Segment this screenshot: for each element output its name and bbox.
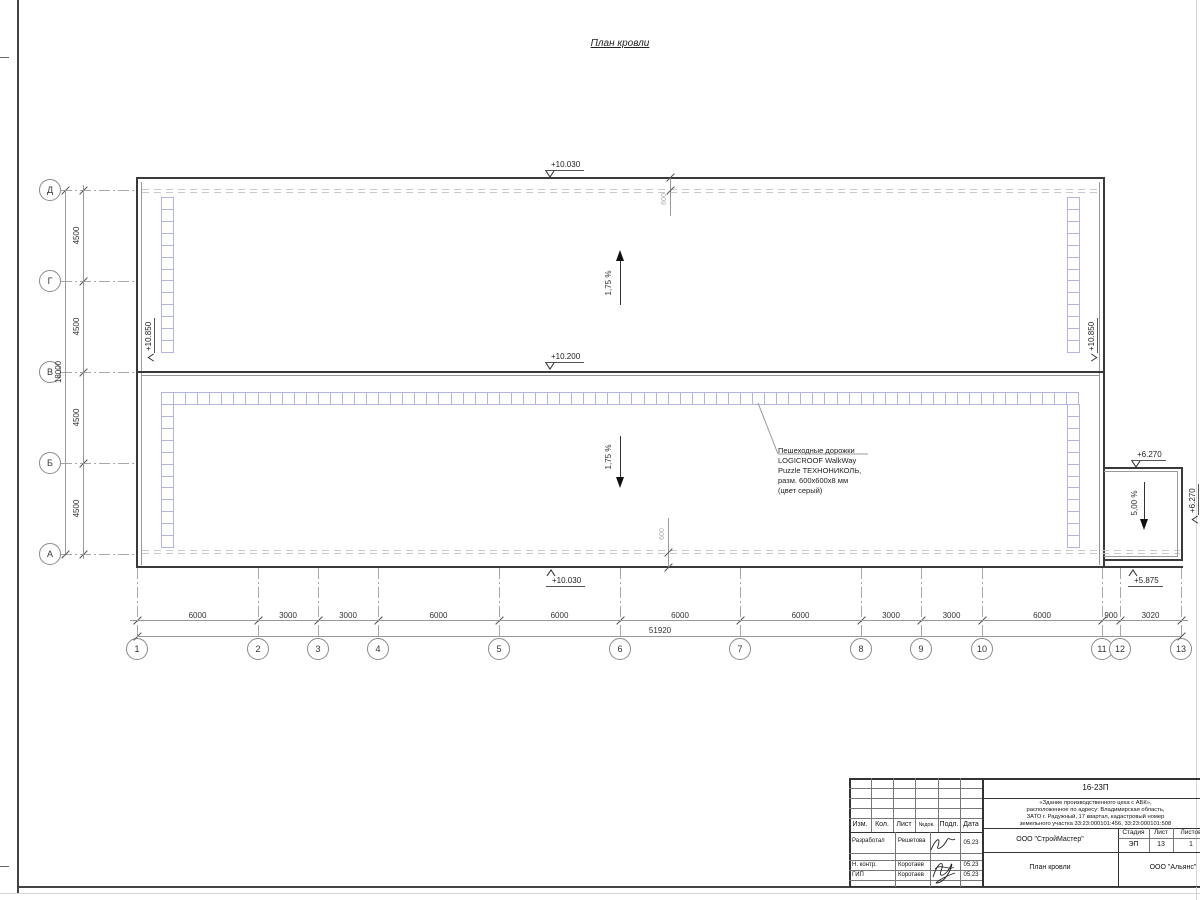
elevation-arrow-down-icon bbox=[545, 170, 555, 178]
walkway-tile bbox=[402, 393, 414, 404]
col-axis-bubble: 8 bbox=[850, 638, 872, 660]
dim-row-segment-text: 4500 bbox=[72, 372, 83, 463]
slope-arrow-canopy-head bbox=[1140, 519, 1148, 530]
canopy-right-edge bbox=[1181, 467, 1183, 561]
walkway-tile bbox=[1017, 393, 1029, 404]
dim-row-segment-text: 4500 bbox=[72, 281, 83, 372]
walkway-tile bbox=[1068, 292, 1079, 304]
walkway-tile bbox=[209, 393, 221, 404]
walkway-tile bbox=[1068, 221, 1079, 233]
wall-left-inner bbox=[141, 182, 142, 565]
walkway-note-line: Пешеходные дорожки bbox=[778, 446, 861, 456]
walkway-tile bbox=[162, 487, 173, 499]
tb-header-podl: Подл. bbox=[938, 821, 960, 828]
walkway-tile bbox=[162, 233, 173, 245]
walkway-tile bbox=[1068, 316, 1079, 328]
dim-col-segment-text: 3000 bbox=[323, 611, 373, 620]
col-axis-bubble: 6 bbox=[609, 638, 631, 660]
title-block: 16-23П «Здание производственного цеха с … bbox=[849, 778, 1200, 887]
walkway-tile bbox=[162, 269, 173, 281]
walkway-tile bbox=[162, 452, 173, 464]
drawing-title: План кровли bbox=[540, 38, 700, 49]
walkway-tile bbox=[716, 393, 728, 404]
tb-sheet-title: План кровли bbox=[982, 864, 1118, 871]
elevation-arrow-up-icon bbox=[546, 569, 556, 577]
walkway-tile bbox=[1068, 340, 1079, 352]
footprint-bottom-extension bbox=[1104, 566, 1183, 568]
walkway-tile bbox=[330, 393, 342, 404]
walkway-tile bbox=[511, 393, 523, 404]
walkway-strip-lower-left bbox=[161, 404, 174, 548]
col-axis-line bbox=[1102, 568, 1103, 638]
walkway-tile bbox=[342, 393, 354, 404]
walkway-tile bbox=[1068, 535, 1079, 547]
walkway-tile bbox=[162, 209, 173, 221]
walkway-tile bbox=[463, 393, 475, 404]
walkway-tile bbox=[414, 393, 426, 404]
slope-label-canopy: 5,00 % bbox=[1130, 479, 1141, 527]
page-edge-right bbox=[1196, 0, 1197, 900]
tb-stage-label: Стадия bbox=[1118, 829, 1149, 836]
dim-col-total-text: 51920 bbox=[630, 626, 690, 635]
tb-date-1: 05.23 bbox=[960, 862, 982, 868]
walkway-tile bbox=[162, 393, 173, 404]
tb-role-0: Разработал bbox=[850, 838, 895, 844]
walkway-note: Пешеходные дорожки LOGICROOF WalkWay Puz… bbox=[778, 446, 861, 496]
tb-project-line: «Здание производственного цеха с АБК», bbox=[982, 800, 1200, 806]
col-axis-line bbox=[921, 568, 922, 638]
dim-line-row-segments bbox=[83, 185, 84, 559]
slope-label-upper: 1,75 % bbox=[604, 257, 615, 309]
walkway-tile bbox=[644, 393, 656, 404]
elevation-arrow-down-icon bbox=[545, 362, 555, 370]
walkway-tile bbox=[1068, 487, 1079, 499]
trim-mark-bottom bbox=[0, 866, 9, 867]
walkway-tile bbox=[547, 393, 559, 404]
walkway-tile bbox=[162, 328, 173, 340]
walkway-tile bbox=[185, 393, 197, 404]
dim-600-top-text: 600 bbox=[661, 184, 671, 214]
dim-row-segment-text: 4500 bbox=[72, 463, 83, 554]
walkway-tile bbox=[162, 428, 173, 440]
walkway-tile bbox=[162, 257, 173, 269]
walkway-tile bbox=[390, 393, 402, 404]
dim-row-segment-text: 4500 bbox=[72, 190, 83, 281]
walkway-tile bbox=[162, 511, 173, 523]
col-axis-bubble: 12 bbox=[1109, 638, 1131, 660]
canopy-right-inner bbox=[1177, 471, 1178, 557]
col-axis-bubble: 13 bbox=[1170, 638, 1192, 660]
walkway-tile bbox=[162, 499, 173, 511]
walkway-tile bbox=[1068, 280, 1079, 292]
walkway-tile bbox=[306, 393, 318, 404]
walkway-tile bbox=[728, 393, 740, 404]
col-axis-bubble: 1 bbox=[126, 638, 148, 660]
dim-col-segment-text: 3020 bbox=[1126, 611, 1176, 620]
walkway-tile bbox=[162, 245, 173, 257]
roof-plan-sheet: План кровли ДГВБА45004500450045001234567… bbox=[0, 0, 1200, 900]
walkway-tile bbox=[692, 393, 704, 404]
tb-sheet-label: Лист bbox=[1149, 829, 1173, 836]
tb-role-1: Н. контр. bbox=[850, 862, 895, 868]
walkway-tile bbox=[981, 393, 993, 404]
col-axis-bubble: 4 bbox=[367, 638, 389, 660]
page-edge-bottom bbox=[0, 893, 1200, 894]
walkway-tile bbox=[499, 393, 511, 404]
walkway-tile bbox=[1005, 393, 1017, 404]
walkway-tile bbox=[1068, 464, 1079, 476]
walkway-tile bbox=[162, 523, 173, 535]
walkway-tile bbox=[426, 393, 438, 404]
walkway-tile bbox=[1066, 393, 1078, 404]
walkway-tile bbox=[1068, 440, 1079, 452]
walkway-tile bbox=[1068, 499, 1079, 511]
col-axis-line bbox=[318, 568, 319, 638]
col-axis-bubble: 3 bbox=[307, 638, 329, 660]
canopy-bottom-edge bbox=[1104, 559, 1183, 561]
walkway-tile bbox=[270, 393, 282, 404]
walkway-note-line: Puzzle ТЕХНОНИКОЛЬ, bbox=[778, 466, 861, 476]
walkway-tile bbox=[933, 393, 945, 404]
elevation-canopy-top: +6.270 bbox=[1131, 450, 1166, 461]
walkway-tile bbox=[1068, 523, 1079, 535]
walkway-tile bbox=[233, 393, 245, 404]
tb-project-line: расположенное по адресу: Владимирская об… bbox=[982, 807, 1200, 813]
elevation-arrow-down-icon bbox=[1131, 460, 1141, 468]
walkway-tile bbox=[162, 292, 173, 304]
tb-sheets-value: 1 bbox=[1173, 841, 1200, 848]
walkway-tile bbox=[1068, 269, 1079, 281]
tb-name-1: Коротаев bbox=[896, 862, 930, 868]
col-axis-line bbox=[499, 568, 500, 638]
walkway-strip-lower-right bbox=[1067, 404, 1080, 548]
tb-header-izm: Изм. bbox=[849, 821, 871, 828]
walkway-tile bbox=[487, 393, 499, 404]
walkway-tile bbox=[258, 393, 270, 404]
dim-line-row-total bbox=[65, 190, 66, 554]
col-axis-bubble: 10 bbox=[971, 638, 993, 660]
walkway-tile bbox=[1068, 198, 1079, 209]
slope-arrow-upper-line bbox=[620, 260, 621, 305]
walkway-tile bbox=[162, 440, 173, 452]
elevation-right-wall: +10.850 bbox=[1086, 305, 1098, 362]
elevation-arrow-icon bbox=[1191, 515, 1199, 524]
canopy-top-inner bbox=[1104, 471, 1178, 472]
walkway-tile bbox=[1054, 393, 1066, 404]
slope-arrow-lower-head bbox=[616, 477, 624, 488]
col-axis-line bbox=[620, 568, 621, 638]
walkway-tile bbox=[1068, 452, 1079, 464]
tb-role-2: ГИП bbox=[850, 872, 895, 878]
col-axis-line bbox=[982, 568, 983, 638]
frame-left bbox=[17, 0, 19, 893]
dim-col-segment-text: 6000 bbox=[173, 611, 223, 620]
col-axis-line bbox=[1120, 568, 1121, 638]
tb-header-kol: Кол. bbox=[871, 821, 893, 828]
tb-org1: ООО "СтройМастер" bbox=[982, 836, 1118, 843]
dim-col-segment-text: 3000 bbox=[866, 611, 916, 620]
col-axis-bubble: 9 bbox=[910, 638, 932, 660]
walkway-tile bbox=[354, 393, 366, 404]
walkway-tile bbox=[945, 393, 957, 404]
tb-header-doc: №док. bbox=[915, 822, 938, 828]
walkway-tile bbox=[318, 393, 330, 404]
elevation-top-edge: +10.030 bbox=[545, 160, 584, 171]
col-axis-line bbox=[137, 568, 138, 638]
col-axis-bubble: 7 bbox=[729, 638, 751, 660]
walkway-tile bbox=[197, 393, 209, 404]
tb-doc-code: 16-23П bbox=[982, 783, 1200, 792]
walkway-tile bbox=[438, 393, 450, 404]
signature bbox=[929, 857, 959, 885]
walkway-tile bbox=[704, 393, 716, 404]
slope-arrow-lower-line bbox=[620, 436, 621, 478]
walkway-tile bbox=[1068, 328, 1079, 340]
walkway-strip-upper-left bbox=[161, 197, 174, 353]
walkway-tile bbox=[571, 393, 583, 404]
walkway-tile bbox=[173, 393, 185, 404]
parapet-dashed-bottom-2 bbox=[142, 553, 1180, 554]
walkway-note-line: (цвет серый) bbox=[778, 486, 861, 496]
roof-bottom-edge bbox=[136, 566, 1105, 568]
elevation-ridge: +10.200 bbox=[545, 352, 584, 363]
walkway-tile bbox=[619, 393, 631, 404]
tb-sheet-value: 13 bbox=[1149, 841, 1173, 848]
dim-row-total-text: 18000 bbox=[54, 190, 65, 554]
slope-arrow-canopy-line bbox=[1144, 482, 1145, 520]
walkway-tile bbox=[1068, 257, 1079, 269]
tb-date-2: 05.23 bbox=[960, 872, 982, 878]
tb-stage-value: ЭП bbox=[1118, 841, 1149, 848]
tb-project-line: ЗАТО г. Радужный, 17 квартал, кадастровы… bbox=[982, 814, 1200, 820]
col-axis-bubble: 2 bbox=[247, 638, 269, 660]
walkway-tile bbox=[282, 393, 294, 404]
roof-top-edge bbox=[136, 177, 1105, 179]
dim-600-bottom-text: 600 bbox=[659, 519, 669, 549]
walkway-tile bbox=[1042, 393, 1054, 404]
col-axis-line bbox=[1181, 568, 1182, 638]
parapet-dashed-top-2 bbox=[142, 192, 1099, 193]
dim-col-segment-text: 6000 bbox=[655, 611, 705, 620]
slope-label-lower: 1,75 % bbox=[604, 431, 615, 483]
canopy-bottom-inner bbox=[1104, 556, 1178, 557]
col-axis-line bbox=[258, 568, 259, 638]
walkway-tile bbox=[221, 393, 233, 404]
wall-right-inner bbox=[1099, 182, 1100, 565]
walkway-tile bbox=[366, 393, 378, 404]
tb-header-data: Дата bbox=[960, 821, 982, 828]
dim-col-segment-text: 6000 bbox=[1017, 611, 1067, 620]
dim-line-col-total bbox=[137, 636, 1181, 637]
elevation-left-wall: +10.850 bbox=[143, 305, 155, 362]
walkway-tile bbox=[378, 393, 390, 404]
tb-sheets-label: Листов bbox=[1173, 829, 1200, 836]
dim-col-segment-text: 6000 bbox=[414, 611, 464, 620]
walkway-tile bbox=[162, 405, 173, 416]
walkway-tile bbox=[993, 393, 1005, 404]
walkway-tile bbox=[656, 393, 668, 404]
walkway-tile bbox=[162, 535, 173, 547]
walkway-tile bbox=[680, 393, 692, 404]
walkway-tile bbox=[559, 393, 571, 404]
walkway-tile bbox=[162, 198, 173, 209]
walkway-tile bbox=[162, 464, 173, 476]
walkway-tile bbox=[921, 393, 933, 404]
walkway-tile bbox=[535, 393, 547, 404]
walkway-tile bbox=[909, 393, 921, 404]
col-axis-bubble: 5 bbox=[488, 638, 510, 660]
tb-header-list: Лист bbox=[893, 821, 915, 828]
walkway-tile bbox=[583, 393, 595, 404]
canopy-top-edge bbox=[1104, 467, 1182, 469]
elevation-canopy-right: +6.270 bbox=[1187, 472, 1199, 524]
dim-col-segment-text: 3000 bbox=[927, 611, 977, 620]
col-axis-line bbox=[378, 568, 379, 638]
parapet-dashed-top-1 bbox=[142, 189, 1099, 190]
elevation-arrow-up-icon bbox=[1128, 569, 1138, 577]
dim-line-col-segments bbox=[130, 620, 1188, 621]
walkway-note-line: разм. 600х600х8 мм bbox=[778, 476, 861, 486]
walkway-tile bbox=[631, 393, 643, 404]
walkway-tile bbox=[969, 393, 981, 404]
col-axis-line bbox=[861, 568, 862, 638]
dim-col-segment-text: 6000 bbox=[776, 611, 826, 620]
walkway-note-line: LOGICROOF WalkWay bbox=[778, 456, 861, 466]
walkway-tile bbox=[1068, 209, 1079, 221]
walkway-tile bbox=[162, 280, 173, 292]
walkway-strip-upper-right bbox=[1067, 197, 1080, 353]
walkway-tile bbox=[162, 340, 173, 352]
walkway-tile bbox=[607, 393, 619, 404]
slope-arrow-upper-head bbox=[616, 250, 624, 261]
tb-name-0: Решетова bbox=[896, 838, 930, 844]
walkway-tile bbox=[1068, 304, 1079, 316]
walkway-tile bbox=[668, 393, 680, 404]
walkway-tile bbox=[245, 393, 257, 404]
walkway-tile bbox=[1068, 428, 1079, 440]
walkway-tile bbox=[595, 393, 607, 404]
elevation-canopy-bottom: +5.875 bbox=[1128, 569, 1163, 587]
ridge-line-inner bbox=[141, 375, 1100, 376]
walkway-tile bbox=[294, 393, 306, 404]
walkway-tile bbox=[162, 304, 173, 316]
signature bbox=[929, 834, 957, 856]
tb-org2: ООО "Альянс" bbox=[1118, 864, 1200, 871]
elevation-bottom-edge: +10.030 bbox=[546, 569, 585, 587]
ridge-line bbox=[137, 371, 1104, 373]
trim-mark-top bbox=[0, 57, 9, 58]
walkway-tile bbox=[1030, 393, 1042, 404]
dim-col-segment-text: 3000 bbox=[263, 611, 313, 620]
walkway-tile bbox=[451, 393, 463, 404]
walkway-tile bbox=[523, 393, 535, 404]
walkway-tile bbox=[1068, 233, 1079, 245]
parapet-dashed-bottom-1 bbox=[142, 550, 1180, 551]
walkway-tile bbox=[1068, 245, 1079, 257]
walkway-tile bbox=[475, 393, 487, 404]
elevation-arrow-icon bbox=[1090, 353, 1098, 362]
col-axis-line bbox=[740, 568, 741, 638]
dim-col-segment-text: 6000 bbox=[535, 611, 585, 620]
walkway-tile bbox=[1068, 416, 1079, 428]
walkway-tile bbox=[162, 221, 173, 233]
walkway-tile bbox=[957, 393, 969, 404]
walkway-tile bbox=[1068, 511, 1079, 523]
walkway-strip-lower-top bbox=[161, 392, 1079, 405]
tb-project-line: земельного участка 33:23:000101:456, 33:… bbox=[982, 821, 1200, 827]
walkway-tile bbox=[1068, 476, 1079, 488]
tb-name-2: Коротаев bbox=[896, 872, 930, 878]
walkway-tile bbox=[1068, 405, 1079, 416]
tb-date-0: 05.23 bbox=[960, 840, 982, 846]
elevation-arrow-icon bbox=[147, 353, 155, 362]
walkway-tile bbox=[162, 316, 173, 328]
walkway-tile bbox=[162, 476, 173, 488]
walkway-tile bbox=[162, 416, 173, 428]
